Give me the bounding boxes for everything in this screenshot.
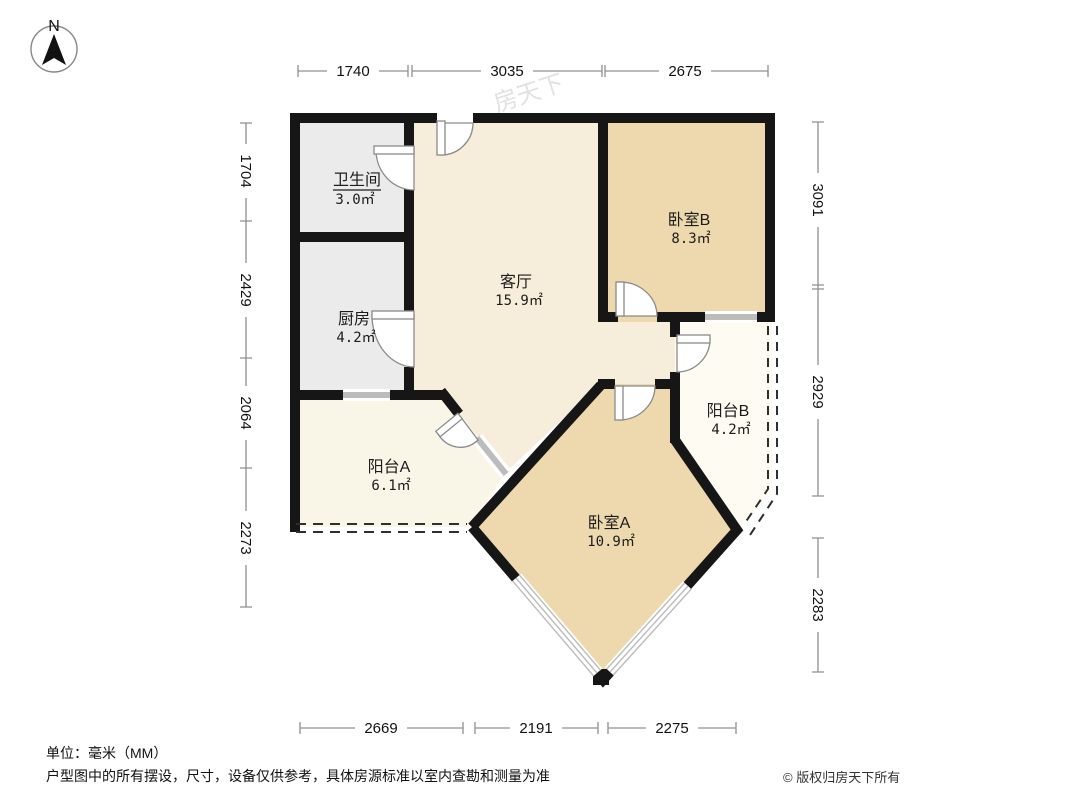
north-arrow-icon: [42, 34, 66, 65]
copyright-text: © 版权归房天下所有: [783, 770, 900, 785]
entry-door-leaf: [437, 121, 445, 155]
disclaimer-text: 户型图中的所有摆设，尺寸，设备仅供参考，具体房源标准以室内查勘和测量为准: [46, 768, 550, 784]
floorplan-page: 房天下: [0, 0, 1066, 800]
kitchen-door-leaf: [372, 311, 414, 319]
bedroom-a-area-label: 10.9㎡: [587, 534, 635, 550]
bathroom-label: 卫生间: [333, 171, 381, 189]
balcony-a-label: 阳台A: [368, 458, 411, 476]
kitchen-area-label: 4.2㎡: [336, 330, 375, 346]
bedroom-b-label: 卧室B: [668, 211, 711, 229]
dim-top-1: 1740: [336, 63, 369, 80]
dim-left-1: 1704: [237, 154, 254, 187]
unit-note: 单位：毫米（MM）: [46, 745, 167, 761]
living-room-label: 客厅: [500, 273, 532, 291]
balcony-a-area-label: 6.1㎡: [371, 478, 410, 494]
dim-right-3: 2283: [809, 588, 826, 621]
dim-left-2: 2429: [237, 273, 254, 306]
dim-bottom-2: 2191: [519, 720, 552, 737]
dim-left-4: 2273: [237, 521, 254, 554]
floorplan-canvas: 房天下: [0, 0, 1066, 800]
footer: 单位：毫米（MM） 户型图中的所有摆设，尺寸，设备仅供参考，具体房源标准以室内查…: [46, 745, 900, 785]
compass: N: [31, 18, 77, 72]
bathroom-area-label: 3.0㎡: [335, 192, 374, 208]
dim-left-3: 2064: [237, 396, 254, 429]
dim-right-2: 2929: [809, 375, 826, 408]
balcony-b-label: 阳台B: [707, 402, 750, 420]
bathroom-door-leaf: [374, 146, 414, 154]
compass-n-label: N: [48, 18, 60, 35]
bedroom-a-door-leaf: [615, 386, 623, 420]
dim-bottom-3: 2275: [655, 720, 688, 737]
bedroom-a-label: 卧室A: [588, 514, 631, 532]
dim-top-3: 2675: [668, 63, 701, 80]
dim-right-1: 3091: [809, 183, 826, 216]
dim-top-2: 3035: [490, 63, 523, 80]
kitchen-label: 厨房: [338, 310, 370, 328]
living-room-area-label: 15.9㎡: [495, 293, 543, 309]
bedroom-b-area-label: 8.3㎡: [671, 231, 710, 247]
dim-bottom-1: 2669: [364, 720, 397, 737]
balcony-b-door-leaf: [677, 335, 710, 343]
balcony-b-area-label: 4.2㎡: [711, 422, 750, 438]
bedroom-b-door-leaf: [616, 282, 624, 316]
